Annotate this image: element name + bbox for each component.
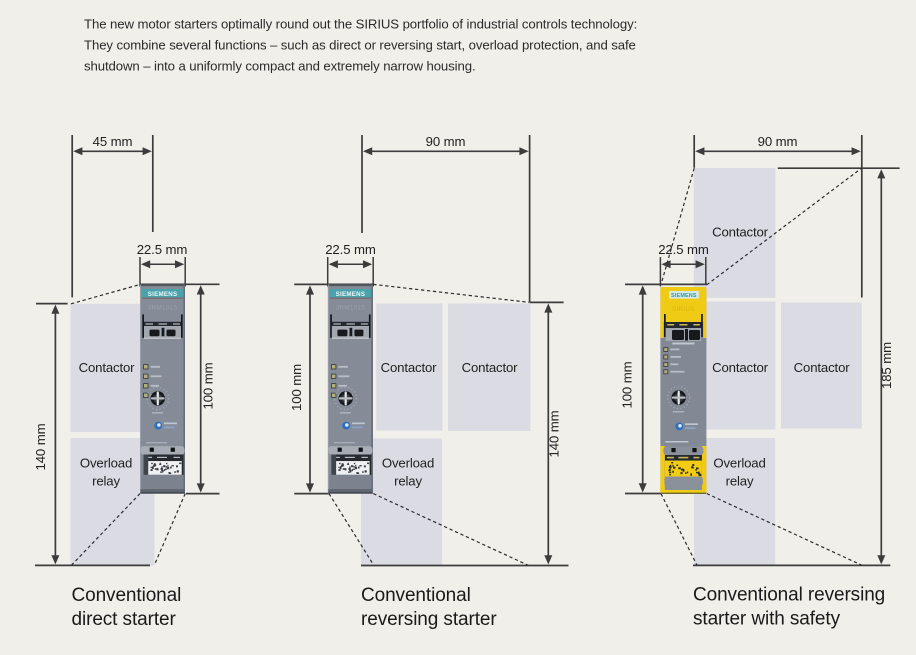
svg-text:22.5 mm: 22.5 mm [325, 242, 376, 257]
svg-text:They combine several functions: They combine several functions – such as… [84, 38, 636, 53]
svg-text:Overload: Overload [80, 456, 132, 471]
svg-text:140 mm: 140 mm [547, 410, 562, 457]
svg-text:Contactor: Contactor [79, 360, 136, 375]
svg-text:90 mm: 90 mm [758, 134, 798, 149]
svg-text:Contactor: Contactor [712, 360, 769, 375]
svg-text:direct starter: direct starter [72, 609, 177, 630]
svg-text:relay: relay [726, 474, 754, 489]
svg-text:22.5 mm: 22.5 mm [658, 242, 709, 257]
svg-text:140 mm: 140 mm [33, 423, 48, 470]
svg-text:Conventional: Conventional [361, 585, 471, 606]
svg-text:relay: relay [92, 474, 120, 489]
svg-text:Overload: Overload [713, 456, 765, 471]
svg-text:22.5 mm: 22.5 mm [137, 242, 188, 257]
svg-text:starter with safety: starter with safety [693, 609, 841, 630]
svg-text:Contactor: Contactor [381, 360, 438, 375]
svg-text:Overload: Overload [382, 456, 434, 471]
svg-text:100 mm: 100 mm [289, 364, 304, 411]
svg-text:100 mm: 100 mm [620, 361, 635, 408]
svg-text:relay: relay [394, 474, 422, 489]
svg-text:reversing starter: reversing starter [361, 609, 497, 630]
svg-text:shutdown – into a uniformly co: shutdown – into a uniformly compact and … [84, 58, 476, 73]
svg-text:The new motor starters optimal: The new motor starters optimally round o… [84, 17, 637, 32]
svg-text:Contactor: Contactor [712, 225, 769, 240]
svg-text:45 mm: 45 mm [93, 134, 133, 149]
svg-text:Conventional: Conventional [72, 585, 182, 606]
svg-text:90 mm: 90 mm [426, 134, 466, 149]
svg-text:Conventional reversing: Conventional reversing [693, 585, 885, 606]
svg-text:Contactor: Contactor [794, 360, 851, 375]
svg-text:185 mm: 185 mm [879, 342, 894, 389]
svg-text:100 mm: 100 mm [201, 362, 216, 409]
svg-text:Contactor: Contactor [462, 360, 519, 375]
